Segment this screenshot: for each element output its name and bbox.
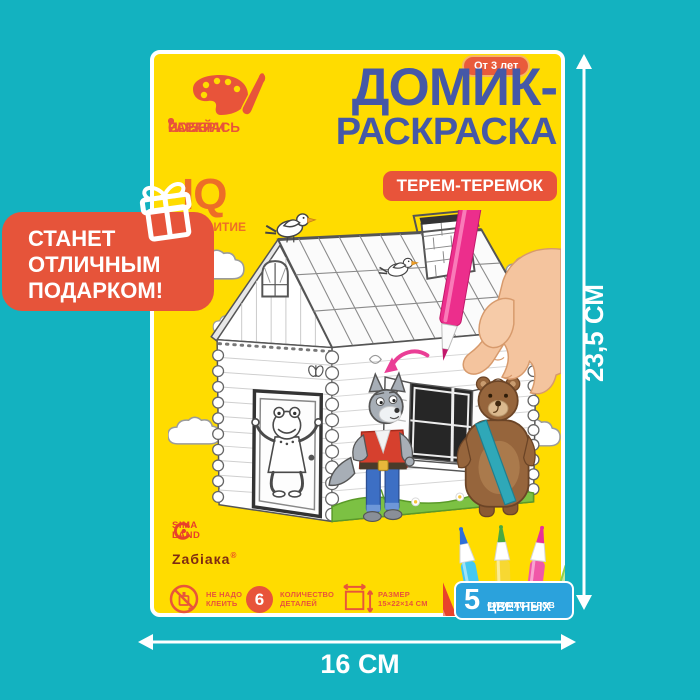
package-front: От 3 лет ДОМИК- РАСКРАСКА ТЕРЕМ-ТЕРЕМОК … [150,50,565,617]
house-illustration [168,210,561,548]
width-dimension-label: 16 СМ [258,649,462,680]
title-line-1: ДОМИК- [336,62,557,114]
markers-count: 5 [464,586,480,615]
registered-mark: ® [230,551,237,560]
size-icon [342,582,373,613]
parts-count-badge: 6 [246,586,273,613]
feature-size-label: РАЗМЕР 15×22×14 СМ [378,590,428,608]
palette-icon [190,71,270,119]
zabiaka-logo: Zабiака® [172,551,237,567]
feature-no-glue-label: НЕ НАДО КЛЕИТЬ [206,590,242,608]
promo-line-3: ПОДАРКОМ! [28,278,214,304]
title-line-2: РАСКРАСКА [336,114,557,151]
no-glue-icon [168,583,200,615]
feature-parts-label: КОЛИЧЕСТВО ДЕТАЛЕЙ [280,590,334,608]
product-title: ДОМИК- РАСКРАСКА [336,62,557,151]
sima-land-logo: SIMA LAND [172,521,200,540]
gift-icon [132,175,203,251]
sima-line-2: LAND [172,531,200,541]
height-dimension-label: 23,5 СМ [579,251,607,415]
product-subtitle-badge: ТЕРЕМ-ТЕРЕМОК [383,171,557,201]
promo-line-2: ОТЛИЧНЫМ [28,252,214,278]
markers-count-badge: 5 ЦВЕТНЫХ ФЛОМАСТЕРОВ [454,581,574,620]
product-advert: От 3 лет ДОМИК- РАСКРАСКА ТЕРЕМ-ТЕРЕМОК … [0,0,700,700]
